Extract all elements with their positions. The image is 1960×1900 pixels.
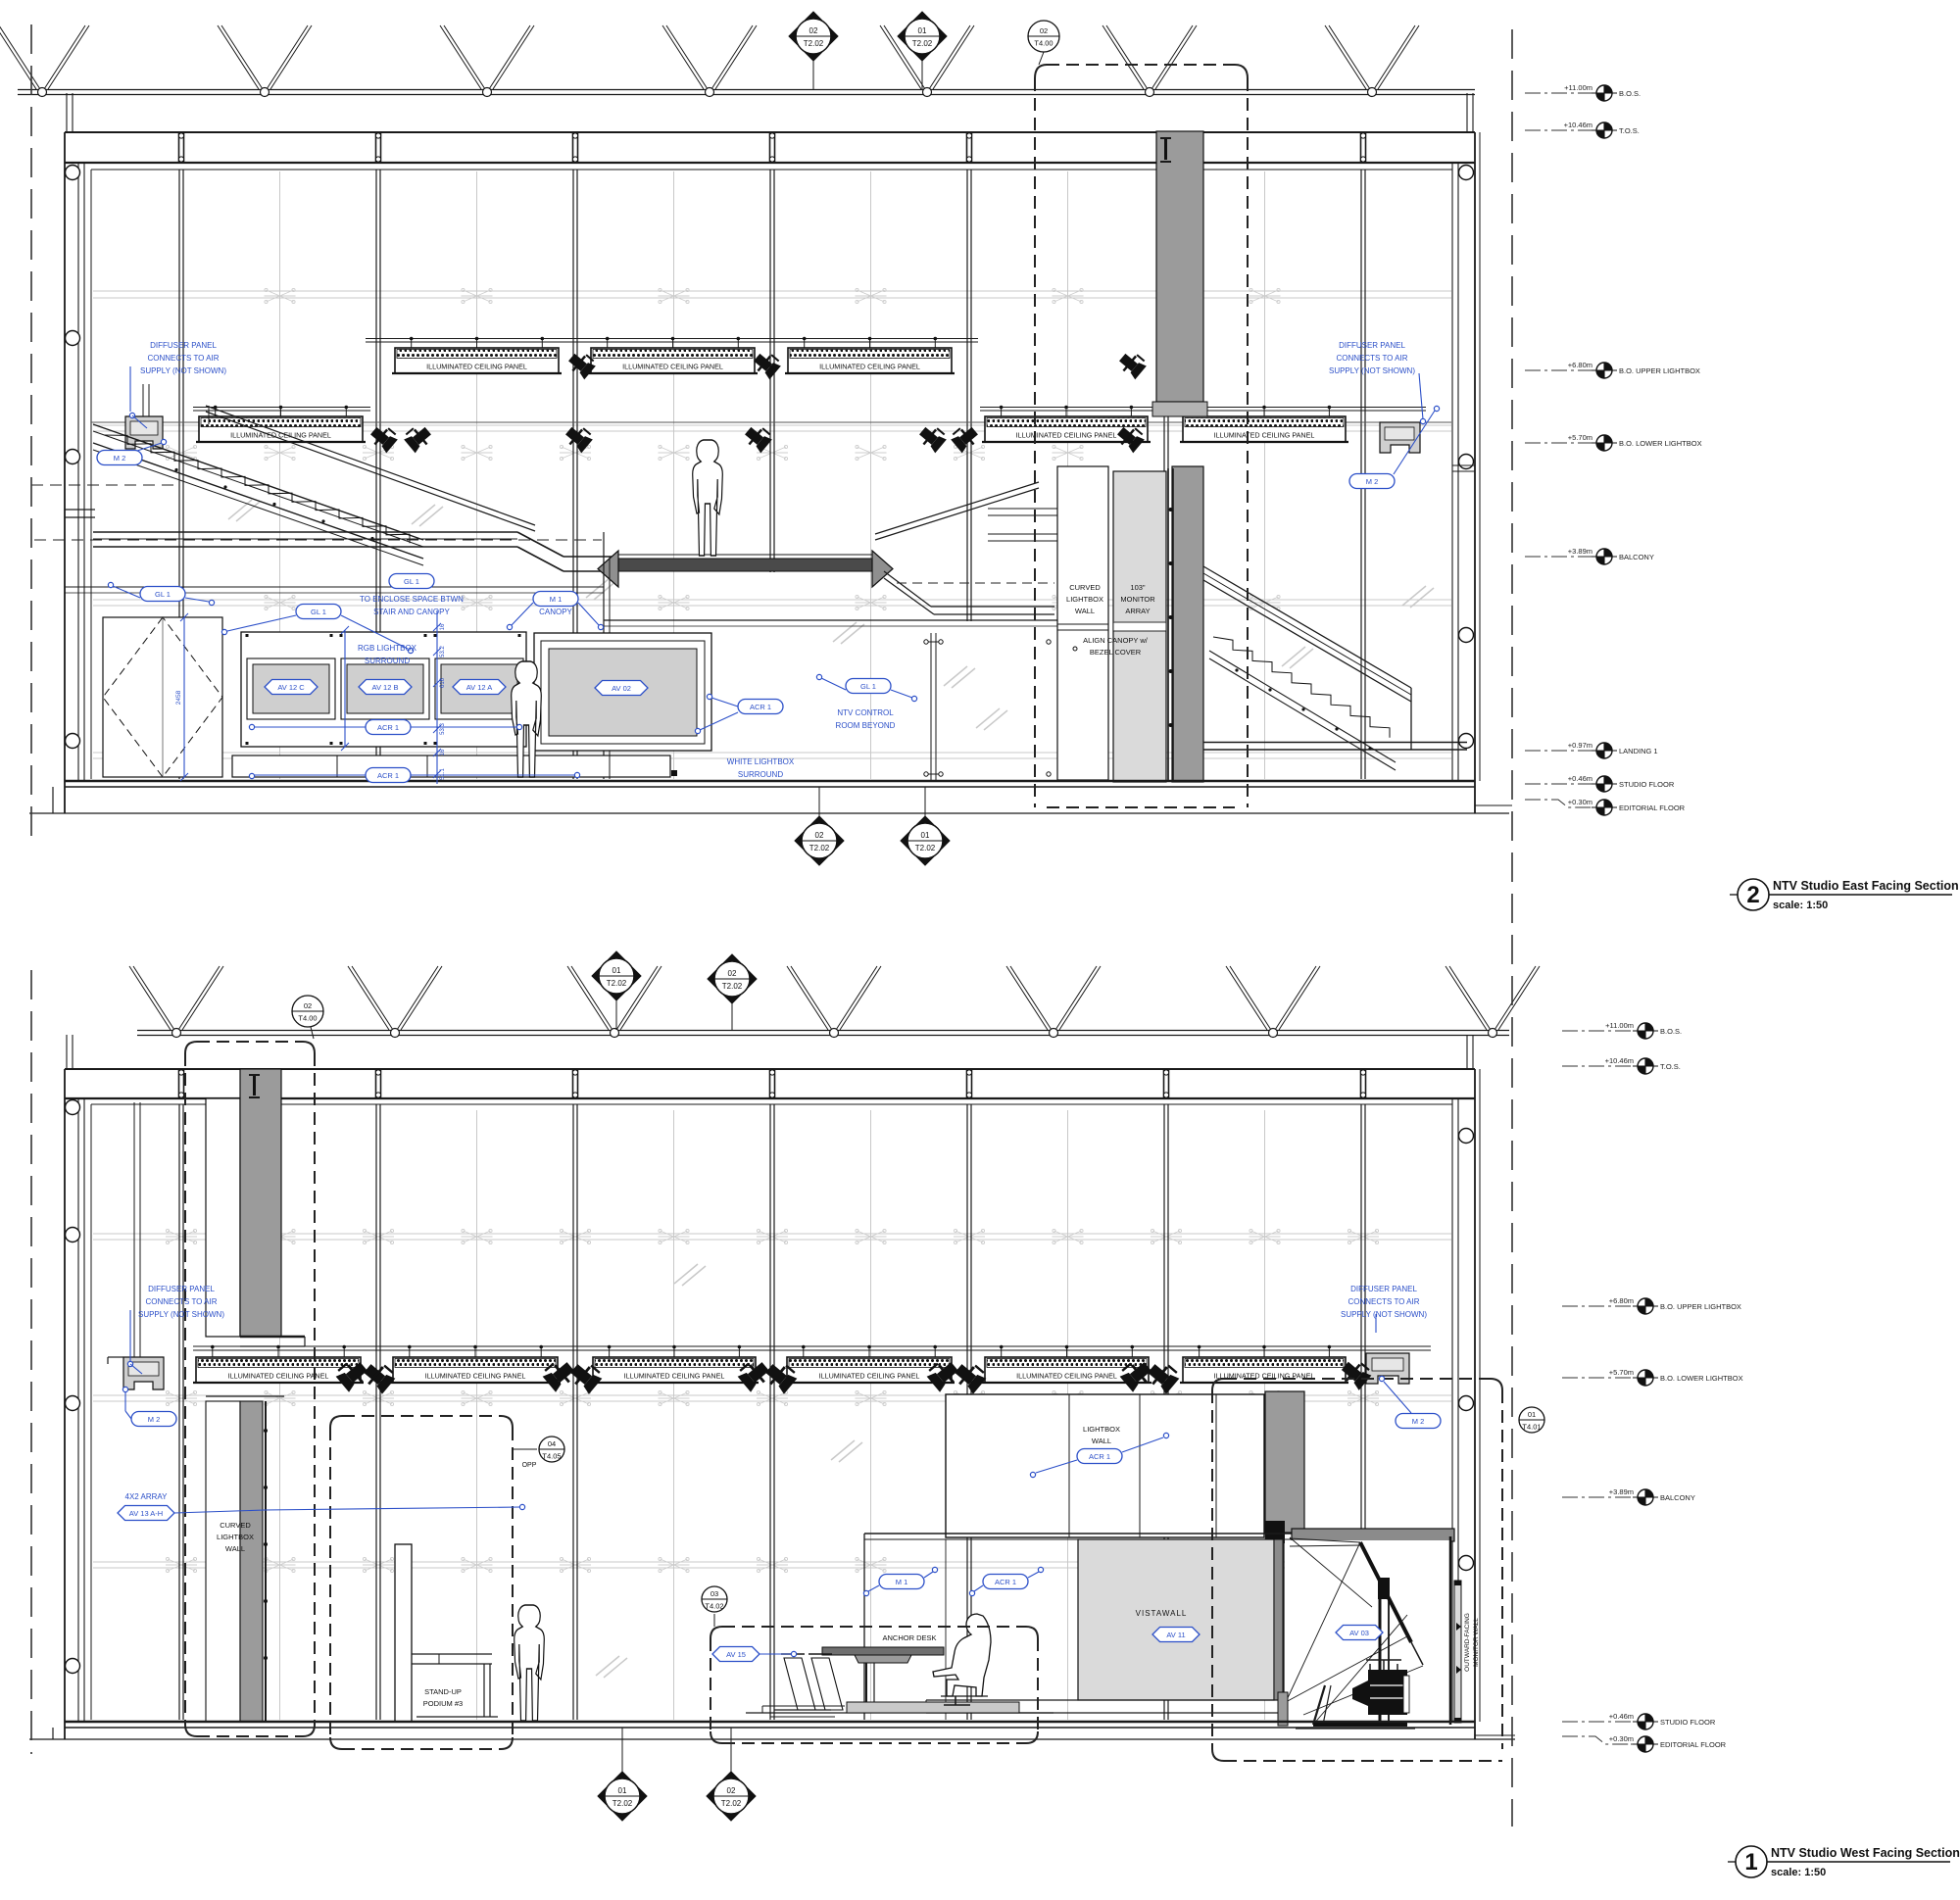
svg-text:616: 616 — [440, 677, 446, 688]
svg-text:T4.00: T4.00 — [298, 1014, 317, 1023]
svg-text:+3.89m: +3.89m — [1609, 1487, 1634, 1496]
svg-text:STAIR AND CANOPY: STAIR AND CANOPY — [373, 608, 450, 616]
svg-text:2458: 2458 — [175, 690, 182, 705]
svg-text:LIGHTBOX: LIGHTBOX — [217, 1533, 254, 1541]
svg-text:NTV Studio West Facing Section: NTV Studio West Facing Section — [1771, 1846, 1960, 1860]
svg-text:CONNECTS TO AIR: CONNECTS TO AIR — [147, 354, 219, 363]
svg-text:SUPPLY (NOT SHOWN): SUPPLY (NOT SHOWN) — [1329, 366, 1415, 375]
svg-text:T4.00: T4.00 — [1034, 39, 1053, 48]
svg-text:AV 12 A: AV 12 A — [466, 683, 493, 692]
svg-text:T2.02: T2.02 — [912, 39, 933, 48]
svg-text:STUDIO FLOOR: STUDIO FLOOR — [1660, 1718, 1716, 1727]
svg-text:WALL: WALL — [1075, 607, 1095, 615]
svg-text:SUPPLY (NOT SHOWN): SUPPLY (NOT SHOWN) — [140, 366, 226, 375]
svg-text:01: 01 — [918, 26, 927, 35]
svg-text:OUTWARD-FACING: OUTWARD-FACING — [1464, 1613, 1471, 1672]
svg-text:T2.02: T2.02 — [722, 982, 743, 991]
svg-text:NTV CONTROL: NTV CONTROL — [837, 708, 894, 717]
svg-text:ILLUMINATED CEILING PANEL: ILLUMINATED CEILING PANEL — [1016, 1372, 1117, 1381]
svg-text:02: 02 — [815, 831, 824, 840]
svg-text:16: 16 — [440, 749, 446, 755]
svg-text:ACR 1: ACR 1 — [995, 1578, 1016, 1586]
svg-text:02: 02 — [304, 1001, 312, 1010]
svg-text:WHITE LIGHTBOX: WHITE LIGHTBOX — [727, 757, 795, 766]
svg-text:EDITORIAL FLOOR: EDITORIAL FLOOR — [1660, 1740, 1727, 1749]
svg-text:M 1: M 1 — [896, 1578, 908, 1586]
svg-text:T2.02: T2.02 — [607, 979, 627, 988]
svg-text:ANCHOR DESK: ANCHOR DESK — [882, 1633, 936, 1642]
svg-text:T2.02: T2.02 — [915, 844, 936, 853]
svg-text:GL 1: GL 1 — [311, 608, 326, 616]
svg-text:T4.01: T4.01 — [1522, 1423, 1541, 1432]
svg-text:AV 13 A-H: AV 13 A-H — [129, 1509, 163, 1518]
svg-text:AV 02: AV 02 — [612, 684, 631, 693]
svg-text:ILLUMINATED CEILING PANEL: ILLUMINATED CEILING PANEL — [819, 1372, 920, 1381]
svg-text:VISTAWALL: VISTAWALL — [1136, 1609, 1188, 1618]
svg-text:ROOM BEYOND: ROOM BEYOND — [836, 721, 896, 730]
svg-text:ILLUMINATED CEILING PANEL: ILLUMINATED CEILING PANEL — [1016, 431, 1117, 440]
svg-text:WALL: WALL — [225, 1544, 245, 1553]
svg-text:ACR 1: ACR 1 — [377, 771, 399, 780]
svg-text:03: 03 — [710, 1589, 718, 1598]
svg-text:T4.05: T4.05 — [542, 1452, 561, 1461]
svg-text:CURVED: CURVED — [220, 1521, 251, 1530]
svg-text:M 1: M 1 — [550, 595, 563, 604]
svg-text:ACR 1: ACR 1 — [377, 723, 399, 732]
svg-text:B.O. UPPER LIGHTBOX: B.O. UPPER LIGHTBOX — [1619, 366, 1700, 375]
svg-text:DIFFUSER PANEL: DIFFUSER PANEL — [1339, 341, 1405, 350]
svg-text:T.O.S.: T.O.S. — [1660, 1062, 1681, 1071]
svg-text:BALCONY: BALCONY — [1660, 1493, 1695, 1502]
svg-text:CONNECTS TO AIR: CONNECTS TO AIR — [1336, 354, 1407, 363]
svg-text:51.1: 51.1 — [440, 768, 446, 780]
svg-text:STAND-UP: STAND-UP — [424, 1687, 462, 1696]
svg-text:02: 02 — [727, 1786, 736, 1795]
svg-text:+5.70m: +5.70m — [1609, 1368, 1634, 1377]
svg-text:PODIUM #3: PODIUM #3 — [423, 1699, 463, 1708]
svg-text:STUDIO FLOOR: STUDIO FLOOR — [1619, 780, 1675, 789]
svg-text:CONNECTS TO AIR: CONNECTS TO AIR — [145, 1297, 217, 1306]
svg-text:+3.89m: +3.89m — [1568, 547, 1592, 556]
svg-text:+11.00m: +11.00m — [1605, 1021, 1634, 1030]
svg-text:01: 01 — [921, 831, 930, 840]
svg-text:T2.02: T2.02 — [804, 39, 824, 48]
svg-text:ILLUMINATED CEILING PANEL: ILLUMINATED CEILING PANEL — [622, 363, 723, 371]
svg-text:AV 03: AV 03 — [1349, 1629, 1369, 1637]
svg-text:GL 1: GL 1 — [860, 682, 876, 691]
svg-text:CONNECTS TO AIR: CONNECTS TO AIR — [1347, 1297, 1419, 1306]
svg-text:LIGHTBOX: LIGHTBOX — [1083, 1425, 1120, 1434]
svg-text:ILLUMINATED CEILING PANEL: ILLUMINATED CEILING PANEL — [228, 1372, 329, 1381]
svg-text:MONITOR: MONITOR — [1120, 595, 1155, 604]
svg-text:BALCONY: BALCONY — [1619, 553, 1654, 561]
svg-text:+0.46m: +0.46m — [1609, 1712, 1634, 1721]
svg-text:ACR 1: ACR 1 — [750, 703, 771, 711]
svg-text:DIFFUSER PANEL: DIFFUSER PANEL — [148, 1285, 215, 1293]
svg-text:02: 02 — [728, 969, 737, 978]
svg-text:B.O. UPPER LIGHTBOX: B.O. UPPER LIGHTBOX — [1660, 1302, 1741, 1311]
svg-text:BEZEL COVER: BEZEL COVER — [1090, 648, 1142, 657]
svg-text:RGB LIGHTBOX: RGB LIGHTBOX — [358, 644, 417, 653]
svg-text:CURVED: CURVED — [1069, 583, 1101, 592]
svg-text:+0.30m: +0.30m — [1609, 1734, 1634, 1743]
svg-text:+6.80m: +6.80m — [1568, 361, 1592, 369]
svg-text:T.O.S.: T.O.S. — [1619, 126, 1640, 135]
svg-text:01: 01 — [1528, 1410, 1536, 1419]
svg-text:M 2: M 2 — [1366, 477, 1379, 486]
svg-text:NTV Studio East Facing Section: NTV Studio East Facing Section — [1773, 879, 1959, 893]
svg-text:SUPPLY (NOT SHOWN): SUPPLY (NOT SHOWN) — [1341, 1310, 1427, 1319]
svg-text:T2.02: T2.02 — [721, 1799, 742, 1808]
svg-text:ILLUMINATED CEILING PANEL: ILLUMINATED CEILING PANEL — [819, 363, 920, 371]
svg-text:ACR 1: ACR 1 — [1089, 1452, 1110, 1461]
svg-text:B.O. LOWER LIGHTBOX: B.O. LOWER LIGHTBOX — [1660, 1374, 1743, 1383]
svg-text:B.O.S.: B.O.S. — [1619, 89, 1641, 98]
svg-text:103": 103" — [1130, 583, 1146, 592]
svg-text:LIGHTBOX: LIGHTBOX — [1066, 595, 1103, 604]
svg-text:WALL: WALL — [1092, 1437, 1111, 1445]
svg-text:CANOPY: CANOPY — [539, 608, 572, 616]
svg-text:+6.80m: +6.80m — [1609, 1296, 1634, 1305]
svg-text:scale: 1:50: scale: 1:50 — [1773, 900, 1828, 911]
svg-text:1: 1 — [1744, 1849, 1757, 1876]
svg-text:T2.02: T2.02 — [809, 844, 830, 853]
svg-text:4X2 ARRAY: 4X2 ARRAY — [125, 1492, 169, 1501]
svg-text:M 2: M 2 — [114, 454, 126, 463]
svg-text:02: 02 — [1040, 26, 1048, 35]
svg-text:AV 15: AV 15 — [726, 1650, 746, 1659]
svg-text:+0.97m: +0.97m — [1568, 741, 1592, 750]
svg-text:SUPPLY (NOT SHOWN): SUPPLY (NOT SHOWN) — [138, 1310, 224, 1319]
svg-text:B.O. LOWER LIGHTBOX: B.O. LOWER LIGHTBOX — [1619, 439, 1702, 448]
svg-text:AV 12 C: AV 12 C — [277, 683, 305, 692]
svg-text:TO ENCLOSE SPACE BTWN: TO ENCLOSE SPACE BTWN — [360, 595, 464, 604]
svg-text:02: 02 — [809, 26, 818, 35]
svg-text:OPP: OPP — [522, 1462, 537, 1469]
svg-text:SURROUND: SURROUND — [738, 770, 783, 779]
svg-text:53.3: 53.3 — [440, 723, 446, 735]
svg-text:ILLUMINATED CEILING PANEL: ILLUMINATED CEILING PANEL — [624, 1372, 725, 1381]
svg-text:ILLUMINATED CEILING PANEL: ILLUMINATED CEILING PANEL — [425, 1372, 526, 1381]
svg-text:04: 04 — [548, 1439, 556, 1448]
svg-text:+10.46m: +10.46m — [1564, 121, 1592, 129]
svg-text:M 2: M 2 — [1412, 1417, 1425, 1426]
svg-text:ILLUMINATED CEILING PANEL: ILLUMINATED CEILING PANEL — [426, 363, 527, 371]
svg-text:T2.02: T2.02 — [612, 1799, 633, 1808]
svg-text:ARRAY: ARRAY — [1125, 607, 1150, 615]
svg-text:ILLUMINATED CEILING PANEL: ILLUMINATED CEILING PANEL — [1214, 431, 1315, 440]
svg-text:M 2: M 2 — [148, 1415, 161, 1424]
svg-text:+0.30m: +0.30m — [1568, 798, 1592, 806]
svg-text:53.2: 53.2 — [440, 646, 446, 658]
svg-text:+5.70m: +5.70m — [1568, 433, 1592, 442]
svg-text:01: 01 — [618, 1786, 627, 1795]
svg-text:GL 1: GL 1 — [404, 577, 419, 586]
svg-text:2: 2 — [1746, 882, 1759, 908]
svg-text:SURROUND: SURROUND — [365, 657, 410, 665]
svg-text:LANDING 1: LANDING 1 — [1619, 747, 1658, 755]
svg-text:16: 16 — [440, 623, 446, 630]
svg-text:+11.00m: +11.00m — [1564, 83, 1592, 92]
svg-text:EDITORIAL FLOOR: EDITORIAL FLOOR — [1619, 804, 1686, 812]
svg-text:AV 12 B: AV 12 B — [372, 683, 399, 692]
svg-text:AV 11: AV 11 — [1166, 1631, 1185, 1639]
svg-text:scale: 1:50: scale: 1:50 — [1771, 1867, 1826, 1878]
svg-text:ALIGN CANOPY w/: ALIGN CANOPY w/ — [1083, 636, 1149, 645]
svg-text:01: 01 — [612, 966, 621, 975]
svg-text:T4.02: T4.02 — [705, 1602, 723, 1611]
svg-text:DIFFUSER PANEL: DIFFUSER PANEL — [150, 341, 217, 350]
svg-text:B.O.S.: B.O.S. — [1660, 1027, 1682, 1036]
svg-text:DIFFUSER PANEL: DIFFUSER PANEL — [1350, 1285, 1417, 1293]
svg-text:MONITOR WALL: MONITOR WALL — [1473, 1618, 1480, 1667]
svg-text:GL 1: GL 1 — [155, 590, 171, 599]
svg-text:+10.46m: +10.46m — [1605, 1056, 1634, 1065]
svg-text:+0.46m: +0.46m — [1568, 774, 1592, 783]
